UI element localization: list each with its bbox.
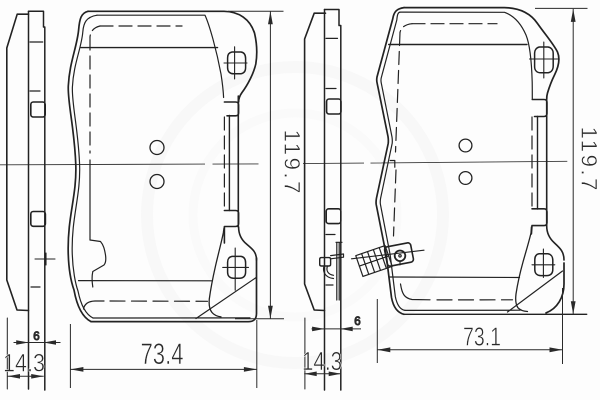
svg-text:73.4: 73.4 (141, 338, 184, 371)
svg-text:6: 6 (33, 331, 39, 343)
svg-text:14.3: 14.3 (302, 346, 342, 376)
svg-text:119.7: 119.7 (577, 127, 600, 191)
svg-text:14.3: 14.3 (3, 349, 45, 377)
svg-text:119.7: 119.7 (280, 130, 305, 194)
svg-text:73.1: 73.1 (463, 322, 501, 352)
svg-text:6: 6 (354, 316, 360, 328)
